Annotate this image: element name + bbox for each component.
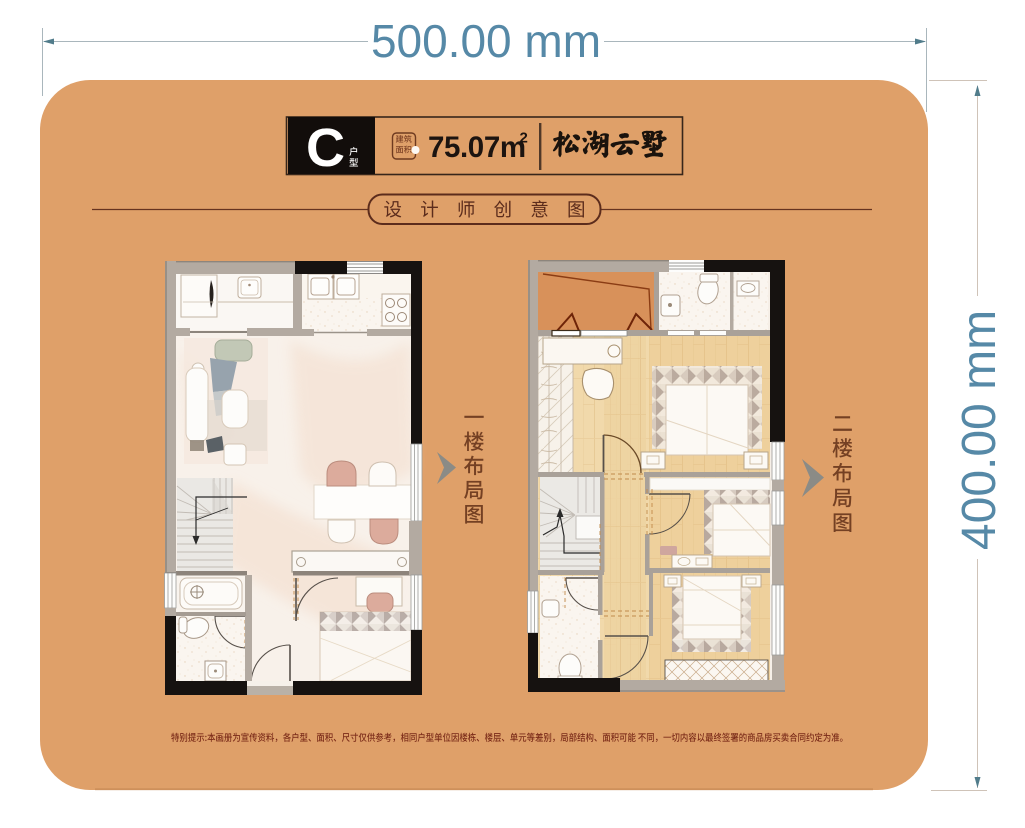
- svg-text:2: 2: [520, 130, 528, 147]
- svg-text:C: C: [306, 118, 345, 178]
- svg-text:400.00 mm: 400.00 mm: [953, 310, 1006, 550]
- svg-text:500.00 mm: 500.00 mm: [371, 15, 601, 67]
- svg-text:75.07m: 75.07m: [428, 131, 526, 164]
